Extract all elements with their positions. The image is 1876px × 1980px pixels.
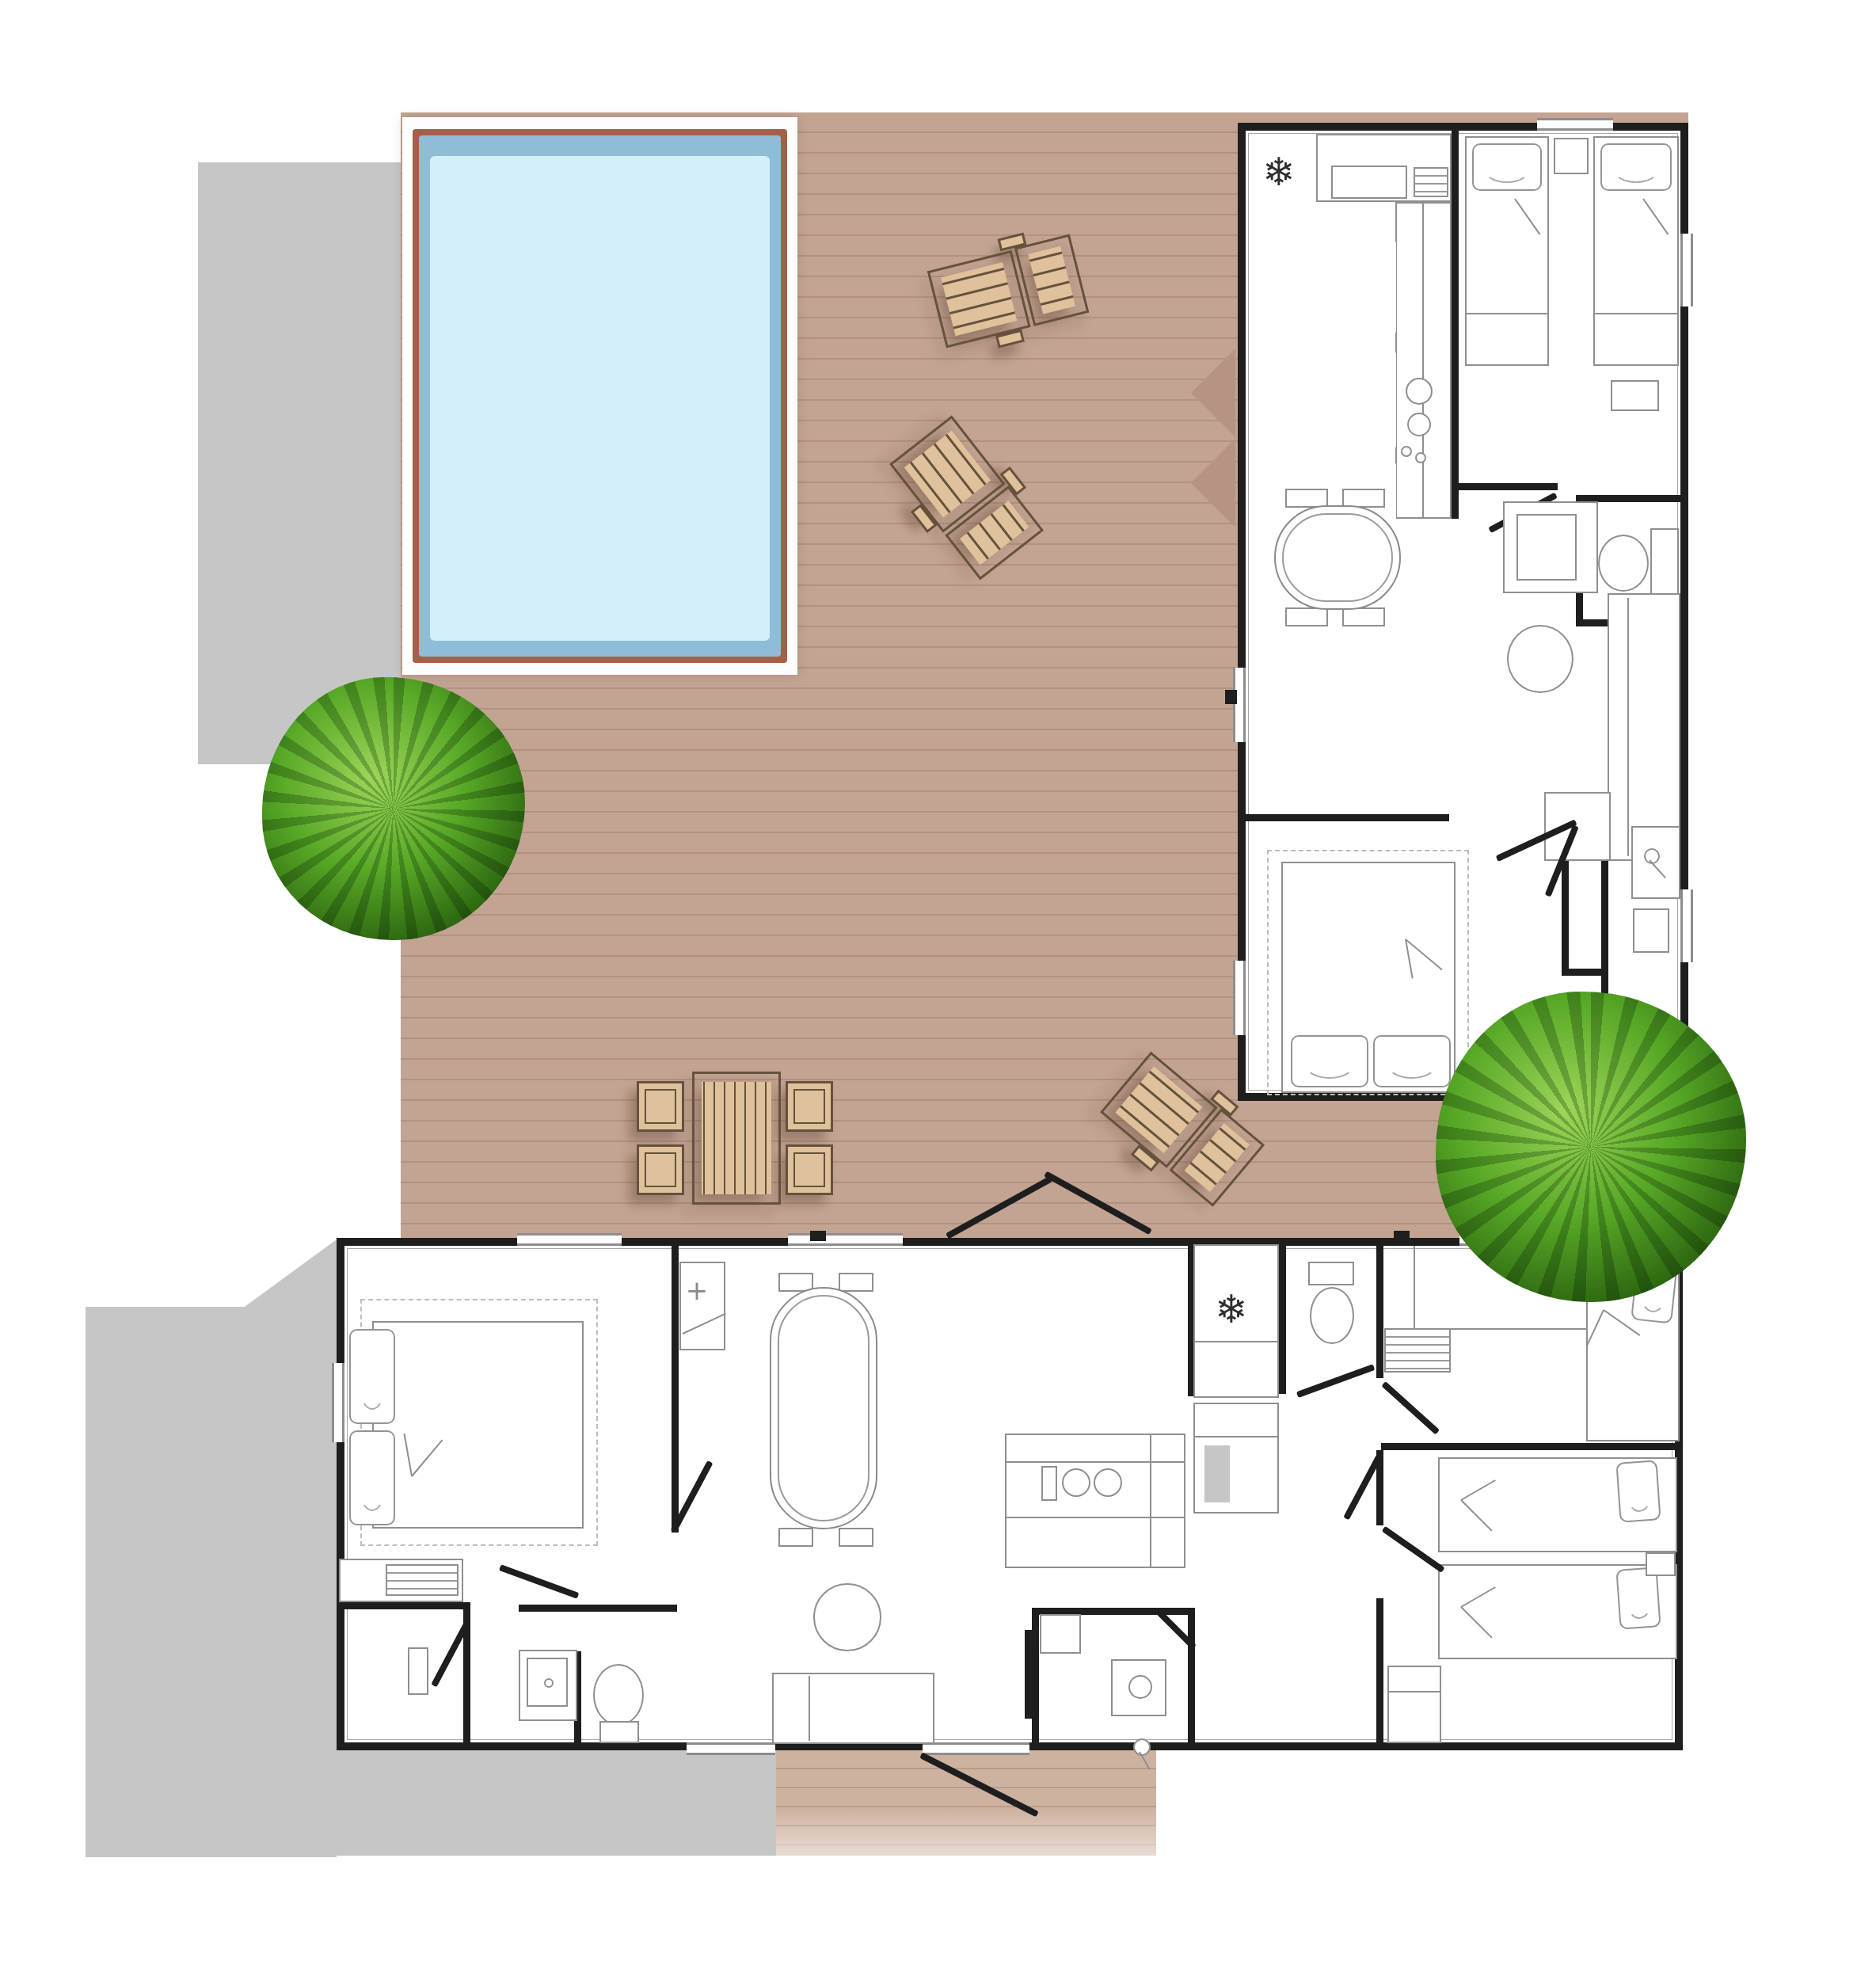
cabinet-shelf: [1193, 1436, 1279, 1437]
sink-drainer: [1414, 167, 1448, 197]
pillow: [1373, 1035, 1451, 1087]
wall-bath-top: [519, 1605, 677, 1612]
pillow: [349, 1430, 395, 1525]
wall-marker: [810, 1231, 826, 1241]
pouf: [813, 1583, 881, 1651]
entry-porch: [776, 1750, 1156, 1856]
dining-chair: [839, 1528, 873, 1547]
stove-burner: [1094, 1468, 1122, 1497]
wall-bedrooms-divider: [1381, 1443, 1683, 1450]
window: [1680, 234, 1693, 307]
toilet-bowl: [593, 1664, 644, 1726]
shadow-wedge: [242, 1239, 337, 1308]
dining-chair: [1285, 607, 1328, 626]
wall-master-top: [1238, 814, 1449, 821]
mobile-home-bottom: +❄: [337, 1238, 1683, 1750]
pillow: [1600, 143, 1672, 191]
pillow: [1472, 143, 1542, 191]
bush: [1436, 992, 1746, 1302]
shadow-slab-bottom-left: [86, 1307, 337, 1857]
toilet-bowl: [1310, 1287, 1354, 1344]
patio-chair: [637, 1144, 684, 1195]
sink-bowl: [1406, 378, 1433, 405]
counter-line: [1005, 1461, 1185, 1463]
wall-tv: [1025, 1630, 1033, 1719]
dining-chair: [778, 1528, 813, 1547]
fridge-snowflake-icon: ❄: [1211, 1289, 1252, 1330]
window: [517, 1233, 622, 1246]
counter-line: [1005, 1517, 1185, 1518]
kitchen-counter: [1005, 1434, 1185, 1568]
shadow-under-unit: [337, 1750, 784, 1856]
sofa-seat-line: [1627, 598, 1629, 856]
stove-burner: [1062, 1468, 1090, 1497]
bed-line: [1465, 313, 1549, 314]
wall-dresser-top: [337, 1602, 467, 1609]
wall-wc-right: [1376, 1238, 1383, 1378]
dining-chair: [839, 1273, 873, 1292]
window: [1680, 889, 1693, 962]
cabinet-shaded: [1204, 1445, 1230, 1502]
shower-bench: [1633, 908, 1669, 953]
sofa: [772, 1673, 934, 1744]
wall-bedroom-hall: [1459, 483, 1558, 490]
patio-chair: [786, 1144, 833, 1195]
dining-table: [770, 1287, 877, 1529]
window: [1537, 118, 1613, 131]
shadow-slab-top-left: [198, 162, 402, 764]
sink-bowl: [1407, 413, 1431, 436]
pillow: [1615, 1567, 1661, 1629]
dining-table: [1274, 505, 1401, 610]
wall-shower-stub: [1562, 969, 1608, 976]
ceiling-vent-icon: +: [683, 1276, 711, 1304]
window: [1233, 961, 1246, 1035]
pool-water: [430, 156, 770, 641]
window: [687, 1742, 775, 1755]
window: [332, 1363, 344, 1442]
bunk-steps: [1384, 1328, 1451, 1373]
wall-wc-left: [1279, 1238, 1286, 1394]
wall-bedroomB-left-lower: [1376, 1598, 1383, 1750]
toilet-bowl: [1598, 535, 1649, 592]
stove-burner: [1401, 446, 1412, 457]
pillow: [1291, 1035, 1368, 1087]
patio-dining-set: [634, 1069, 836, 1205]
kitchen-sink: [1041, 1466, 1057, 1501]
stove-burner: [1415, 452, 1426, 463]
dining-chair: [1342, 607, 1385, 626]
wall-shower-right: [1188, 1608, 1195, 1750]
wall-kitchen-bedroom: [1452, 123, 1459, 519]
fridge-snowflake-icon: ❄: [1258, 151, 1300, 192]
bush: [262, 677, 525, 940]
floor-plan-canvas: ❄+❄: [0, 0, 1876, 1980]
counter-divider: [1422, 202, 1424, 519]
patio-table: [692, 1072, 781, 1205]
bed-line: [1593, 313, 1679, 314]
patio-chair: [637, 1081, 684, 1132]
dresser-drawers: [386, 1564, 459, 1596]
dressing-item: [408, 1647, 428, 1695]
window: [1233, 668, 1246, 742]
window: [788, 1233, 903, 1246]
shower-head-icon: [1133, 1738, 1151, 1756]
shower-basin: [1128, 1675, 1152, 1699]
nightstand: [1646, 1552, 1676, 1576]
sofa: [1608, 593, 1680, 861]
kitchen-sink: [1331, 166, 1407, 199]
faucet: [544, 1678, 554, 1688]
counter-divider: [1150, 1434, 1151, 1568]
pillow: [349, 1329, 395, 1424]
bed-platform-line: [1414, 1246, 1415, 1328]
toilet-tank: [1650, 528, 1679, 595]
tv-cabinet-inner: [1516, 514, 1577, 581]
pouf: [1507, 625, 1573, 693]
wall-shower-left: [1032, 1608, 1039, 1750]
wall-bedroom-living: [672, 1238, 679, 1533]
mobile-home-right: ❄: [1238, 123, 1688, 1101]
wall-marker: [1394, 1231, 1410, 1241]
toilet-tank: [599, 1721, 639, 1743]
bed-platform-line: [1384, 1328, 1586, 1330]
pillow: [1615, 1460, 1661, 1522]
double-bed: [372, 1321, 584, 1529]
toilet-tank: [1308, 1262, 1354, 1285]
patio-chair: [786, 1081, 833, 1132]
fridge-shelf: [1193, 1341, 1279, 1342]
door-opening: [923, 1742, 1029, 1755]
shelf: [1611, 380, 1659, 411]
corner-shelf: [1040, 1614, 1081, 1654]
sofa-seat-line: [809, 1676, 810, 1741]
wardrobe: [1387, 1666, 1441, 1743]
wall-marker: [1225, 690, 1237, 704]
nightstand: [1554, 138, 1589, 174]
wardrobe-shelf: [1387, 1691, 1441, 1693]
